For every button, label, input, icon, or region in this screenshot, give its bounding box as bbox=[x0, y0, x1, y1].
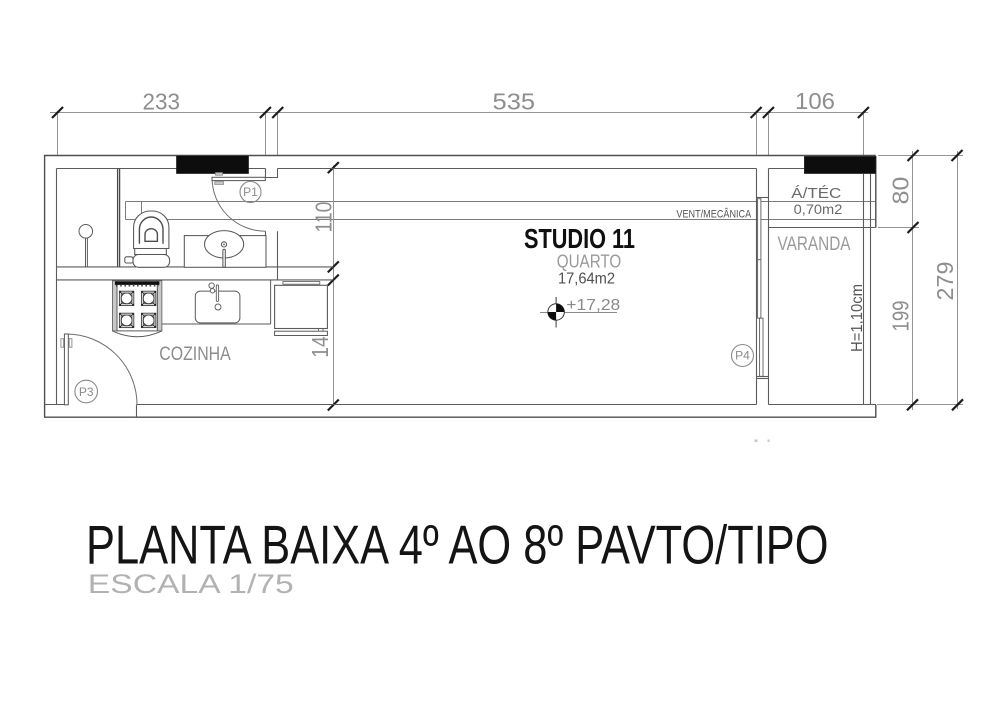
svg-text:199: 199 bbox=[888, 301, 914, 332]
svg-text:14: 14 bbox=[307, 336, 333, 358]
svg-text:P4: P4 bbox=[735, 349, 750, 363]
svg-text:Á/TÉC: Á/TÉC bbox=[791, 185, 841, 202]
svg-text:VARANDA: VARANDA bbox=[778, 233, 851, 255]
svg-text:PLANTA BAIXA 4º AO 8º PAVTO/T: PLANTA BAIXA 4º AO 8º PAVTO/TIPO bbox=[86, 514, 829, 576]
svg-text:H=1,10cm: H=1,10cm bbox=[849, 284, 866, 352]
svg-text:+17,28: +17,28 bbox=[566, 297, 620, 314]
svg-text:535: 535 bbox=[493, 89, 536, 115]
svg-text:COZINHA: COZINHA bbox=[159, 344, 231, 365]
svg-text:233: 233 bbox=[143, 89, 181, 115]
svg-text:17,64m2: 17,64m2 bbox=[558, 270, 615, 287]
svg-text:VENT/MECÂNICA: VENT/MECÂNICA bbox=[676, 207, 751, 220]
svg-text:P3: P3 bbox=[79, 385, 94, 399]
svg-text:80: 80 bbox=[888, 177, 914, 205]
svg-text:P1: P1 bbox=[243, 185, 258, 199]
svg-text:0,70m2: 0,70m2 bbox=[794, 201, 843, 217]
svg-text:279: 279 bbox=[932, 262, 958, 301]
svg-text:110: 110 bbox=[311, 202, 337, 233]
svg-text:ESCALA 1/75: ESCALA 1/75 bbox=[88, 569, 294, 599]
svg-text:QUARTO: QUARTO bbox=[557, 250, 622, 271]
svg-text:106: 106 bbox=[795, 88, 835, 114]
